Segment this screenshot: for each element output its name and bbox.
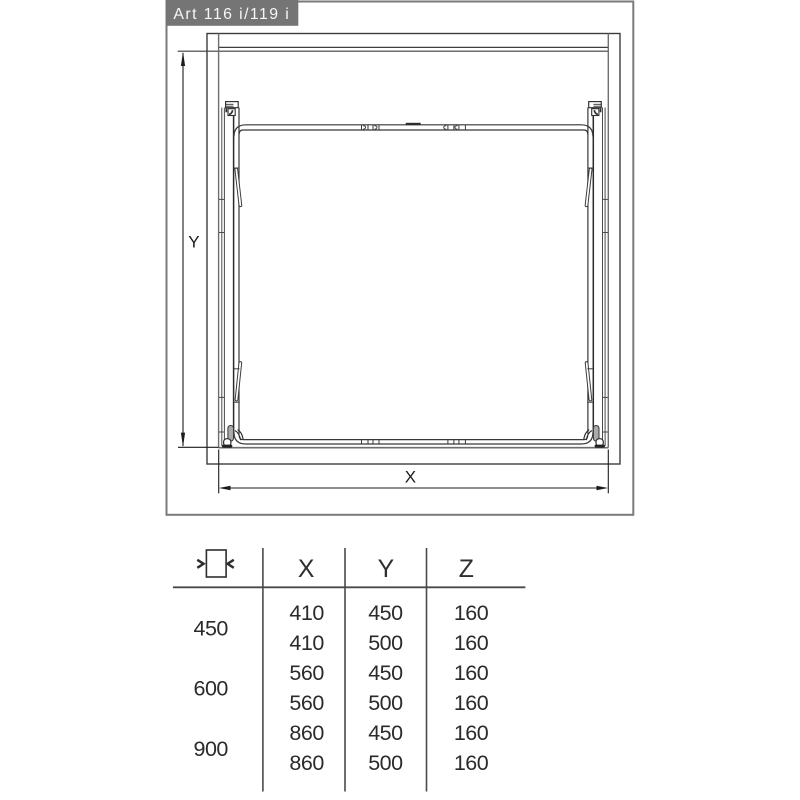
svg-text:410: 410 — [289, 601, 324, 625]
svg-text:560: 560 — [289, 691, 324, 715]
svg-text:160: 160 — [454, 721, 489, 745]
svg-text:860: 860 — [289, 721, 324, 745]
svg-text:860: 860 — [289, 751, 324, 775]
svg-text:450: 450 — [368, 721, 403, 745]
svg-text:160: 160 — [454, 661, 489, 685]
svg-text:Art 116 i/119 i: Art 116 i/119 i — [173, 6, 290, 23]
svg-text:160: 160 — [454, 691, 489, 715]
svg-text:450: 450 — [368, 601, 403, 625]
svg-text:160: 160 — [454, 601, 489, 625]
svg-text:160: 160 — [454, 751, 489, 775]
svg-text:600: 600 — [194, 677, 229, 701]
svg-text:Y: Y — [188, 233, 199, 252]
svg-text:410: 410 — [289, 631, 324, 655]
svg-text:500: 500 — [368, 691, 403, 715]
svg-text:Z: Z — [459, 556, 474, 583]
svg-text:560: 560 — [289, 661, 324, 685]
svg-text:450: 450 — [194, 617, 229, 641]
svg-text:500: 500 — [368, 751, 403, 775]
svg-text:500: 500 — [368, 631, 403, 655]
svg-text:Y: Y — [378, 556, 395, 583]
svg-text:450: 450 — [368, 661, 403, 685]
svg-text:X: X — [298, 556, 315, 583]
svg-text:X: X — [405, 468, 416, 487]
svg-text:160: 160 — [454, 631, 489, 655]
svg-text:900: 900 — [194, 737, 229, 761]
